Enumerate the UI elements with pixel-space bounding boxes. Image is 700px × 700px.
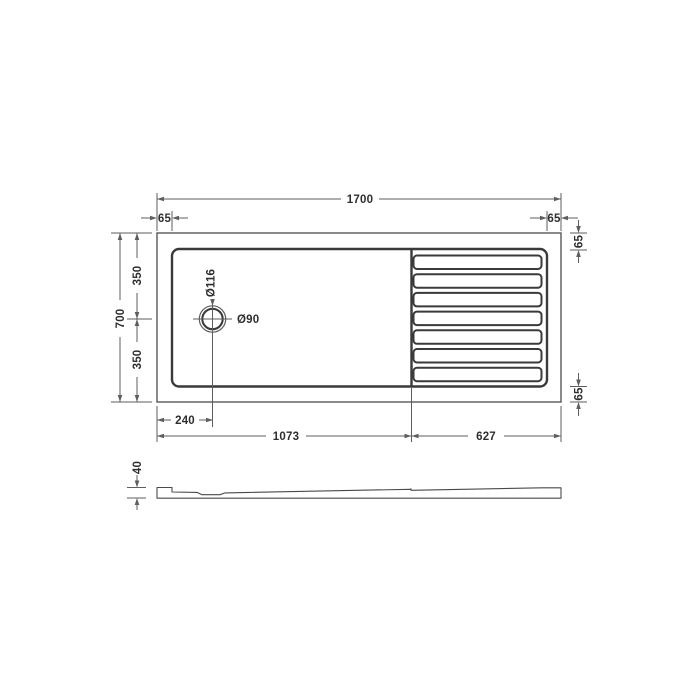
- flat-section-label: 1073: [273, 431, 299, 443]
- side-view: 40: [127, 461, 561, 510]
- dimension-arrowhead: [561, 216, 568, 221]
- dimension-inset-right-bottom: 65: [570, 373, 587, 416]
- tray-side-profile: [157, 488, 561, 499]
- inset-right-bottom-label: 65: [574, 387, 586, 401]
- dimension-arrowhead: [135, 481, 140, 488]
- inset-top-right-label: 65: [547, 213, 561, 225]
- side-height-label: 40: [132, 461, 144, 474]
- depth-upper-label: 350: [132, 266, 144, 286]
- rib-slat: [414, 312, 542, 326]
- shower-tray-drawing: Ø116 Ø90 1700 65 65 65 65: [0, 0, 700, 700]
- drying-area-ribs: [414, 256, 542, 382]
- rib-slat: [414, 256, 542, 270]
- overall-depth-label: 700: [115, 309, 127, 329]
- dimension-arrowhead: [576, 250, 581, 257]
- dimension-arrowhead: [157, 434, 164, 439]
- dimension-arrowhead: [135, 312, 140, 319]
- drain-outer-dia-label: Ø116: [206, 269, 218, 297]
- drain-waste-dia-label: Ø90: [237, 314, 259, 326]
- inset-right-top-label: 65: [574, 235, 586, 249]
- rib-slat: [414, 330, 542, 344]
- rib-slat: [414, 368, 542, 382]
- dimension-overall-depth: 700: [111, 233, 152, 402]
- depth-lower-label: 350: [132, 350, 144, 370]
- plan-view: Ø116 Ø90: [127, 233, 561, 427]
- technical-drawing-page: Ø116 Ø90 1700 65 65 65 65: [0, 0, 700, 700]
- dimension-arrowhead: [172, 216, 179, 221]
- dimension-arrowhead: [150, 216, 157, 221]
- dimension-depth-upper: 350: [132, 233, 144, 319]
- inset-top-left-label: 65: [158, 213, 172, 225]
- dimension-arrowhead: [135, 233, 140, 240]
- dimension-overall-width: 1700: [157, 193, 561, 231]
- dimension-inset-top-left: 65: [141, 211, 188, 231]
- dimension-arrowhead: [206, 418, 213, 423]
- drain-offset-label: 240: [175, 415, 195, 427]
- dimension-drain-offset: 240: [157, 406, 213, 442]
- dimension-arrowhead: [157, 418, 164, 423]
- dimension-arrowhead: [118, 395, 123, 402]
- ribbed-section-label: 627: [476, 431, 496, 443]
- rib-slat: [414, 293, 542, 307]
- dimension-arrowhead: [118, 233, 123, 240]
- dimension-arrowhead: [135, 395, 140, 402]
- dimension-arrowhead: [135, 319, 140, 326]
- dimension-inset-top-right: 65: [530, 211, 578, 231]
- rib-slat: [414, 274, 542, 288]
- dimension-arrowhead: [540, 216, 547, 221]
- dimension-ribbed-section: 627: [412, 431, 562, 443]
- overall-width-label: 1700: [347, 194, 373, 206]
- dimension-depth-lower: 350: [132, 319, 144, 402]
- dimension-arrowhead: [412, 434, 419, 439]
- dimension-arrowhead: [554, 434, 561, 439]
- dimension-arrowhead: [576, 226, 581, 233]
- dimension-arrowhead: [576, 402, 581, 409]
- dimension-arrowhead: [157, 197, 164, 202]
- dimension-arrowhead: [554, 197, 561, 202]
- dimension-arrowhead: [135, 498, 140, 505]
- rib-slat: [414, 349, 542, 363]
- dimension-arrowhead: [576, 380, 581, 387]
- dimension-arrowhead: [405, 434, 412, 439]
